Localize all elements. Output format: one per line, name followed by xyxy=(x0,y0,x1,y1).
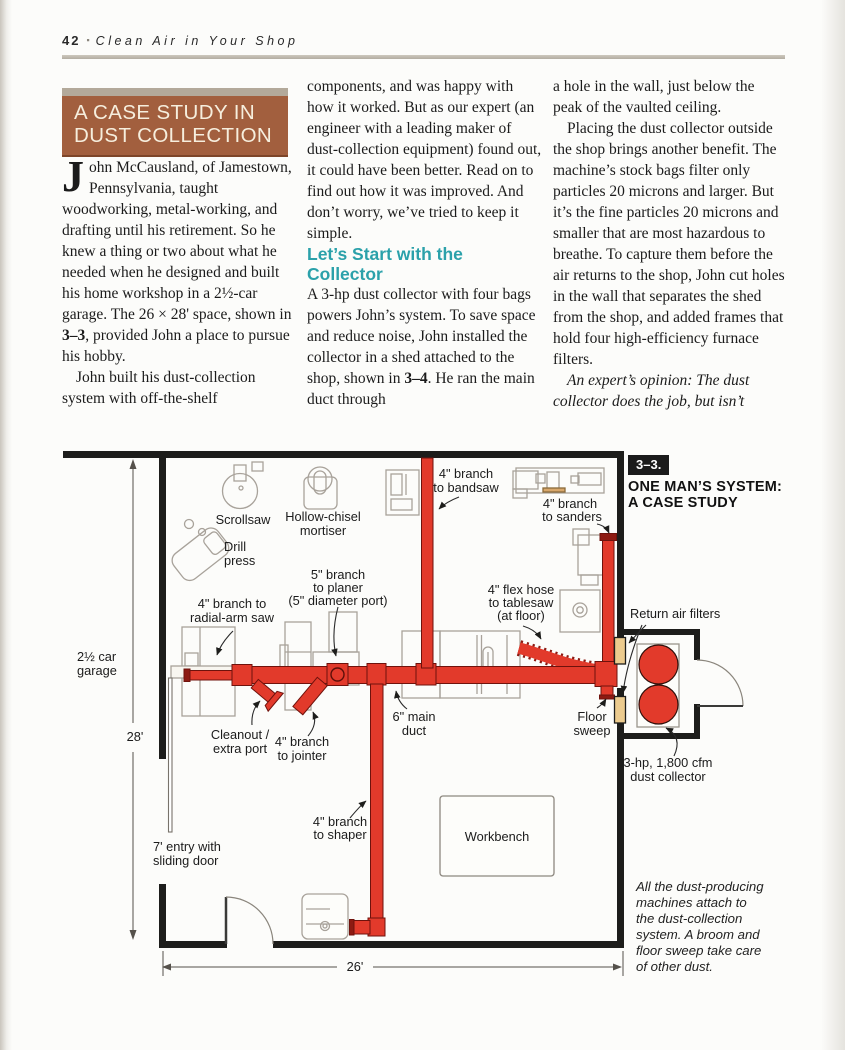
filter-top xyxy=(615,638,626,665)
sanders-duct-cap xyxy=(600,534,617,541)
label-bandsaw-branch: 4" branch xyxy=(439,466,493,481)
shed-door-arc xyxy=(697,660,743,706)
label-dimension-26: 26' xyxy=(347,959,364,974)
duct-left-cap xyxy=(184,669,190,682)
label-garage: 2½ car xyxy=(77,649,117,664)
duct-end-junction xyxy=(595,662,617,687)
wall-bottom-left xyxy=(159,941,227,948)
collector-bag-top xyxy=(639,645,678,684)
label-dust-collector: dust collector xyxy=(630,769,706,784)
label-planer-branch: (5" diameter port) xyxy=(288,593,387,608)
shed-wall-top xyxy=(624,629,700,635)
duct-reducer xyxy=(232,665,252,686)
label-entry-door: 7' entry with xyxy=(153,839,221,854)
label-drill-press: Drill xyxy=(224,539,246,554)
shed-wall-bottom xyxy=(624,733,700,739)
label-drill-press: press xyxy=(224,553,255,568)
label-main-duct: duct xyxy=(402,723,427,738)
shaper-duct-horizontal xyxy=(352,921,370,935)
label-flex-hose: (at floor) xyxy=(497,608,545,623)
sander-bench xyxy=(513,468,604,498)
wall-left-upper xyxy=(159,451,166,759)
duct-left-thin xyxy=(187,671,233,681)
floor-sweep-cap xyxy=(600,695,615,699)
label-main-duct: 6" main xyxy=(393,709,436,724)
wall-left-lower xyxy=(159,884,166,948)
filter-bottom xyxy=(615,697,626,724)
label-garage: garage xyxy=(77,663,117,678)
floorplan-diagram: Scrollsaw Hollow-chisel mortiser Drill p… xyxy=(0,0,845,1050)
shaper-elbow xyxy=(368,918,385,936)
shed-wall-right-lower xyxy=(694,704,700,739)
sliding-door-leaf xyxy=(169,678,173,832)
label-dust-collector: 3-hp, 1,800 cfm xyxy=(624,755,713,770)
label-mortiser: mortiser xyxy=(300,523,347,538)
label-cleanout: extra port xyxy=(213,741,268,756)
label-workbench: Workbench xyxy=(465,829,530,844)
label-return-air-filters: Return air filters xyxy=(630,606,720,621)
shaper-tee xyxy=(367,664,386,686)
wall-right-upper xyxy=(617,451,624,638)
shaper-machine xyxy=(302,894,348,939)
shaper-duct xyxy=(371,684,384,927)
label-bandsaw-branch: to bandsaw xyxy=(433,480,499,495)
label-cleanout: Cleanout / xyxy=(211,727,270,742)
shed-wall-right-upper xyxy=(694,629,700,660)
label-floor-sweep: sweep xyxy=(574,723,611,738)
drill-press-machine xyxy=(169,520,233,585)
label-floor-sweep: Floor xyxy=(577,709,607,724)
collector-bag-bottom xyxy=(639,685,678,724)
wall-top xyxy=(63,451,624,458)
scrollsaw-machine xyxy=(223,462,264,509)
label-radial-arm-branch: 4" branch to xyxy=(198,596,267,611)
duct-system xyxy=(184,458,678,936)
stand-with-port xyxy=(560,590,600,632)
sander-machine xyxy=(573,529,604,585)
label-radial-arm-branch: radial-arm saw xyxy=(190,610,275,625)
label-sanders-branch: to sanders xyxy=(542,509,602,524)
bandsaw-machine xyxy=(386,470,419,515)
label-jointer-branch: 4" branch xyxy=(275,734,329,749)
mortiser-machine xyxy=(304,467,337,509)
sanders-duct xyxy=(603,540,615,667)
bandsaw-duct xyxy=(422,458,434,668)
label-scrollsaw: Scrollsaw xyxy=(216,512,272,527)
wall-bottom-main xyxy=(273,941,624,948)
magazine-page: 42▪Clean Air in Your Shop A CASE STUDY I… xyxy=(0,0,845,1050)
label-jointer-branch: to jointer xyxy=(277,748,327,763)
label-entry-door: sliding door xyxy=(153,853,219,868)
planer-port-ring xyxy=(331,668,344,681)
label-dimension-28: 28' xyxy=(127,729,144,744)
label-mortiser: Hollow-chisel xyxy=(285,509,360,524)
label-shaper-branch: to shaper xyxy=(313,827,367,842)
entry-door-arc xyxy=(226,897,273,944)
shaper-duct-cap xyxy=(350,920,355,936)
